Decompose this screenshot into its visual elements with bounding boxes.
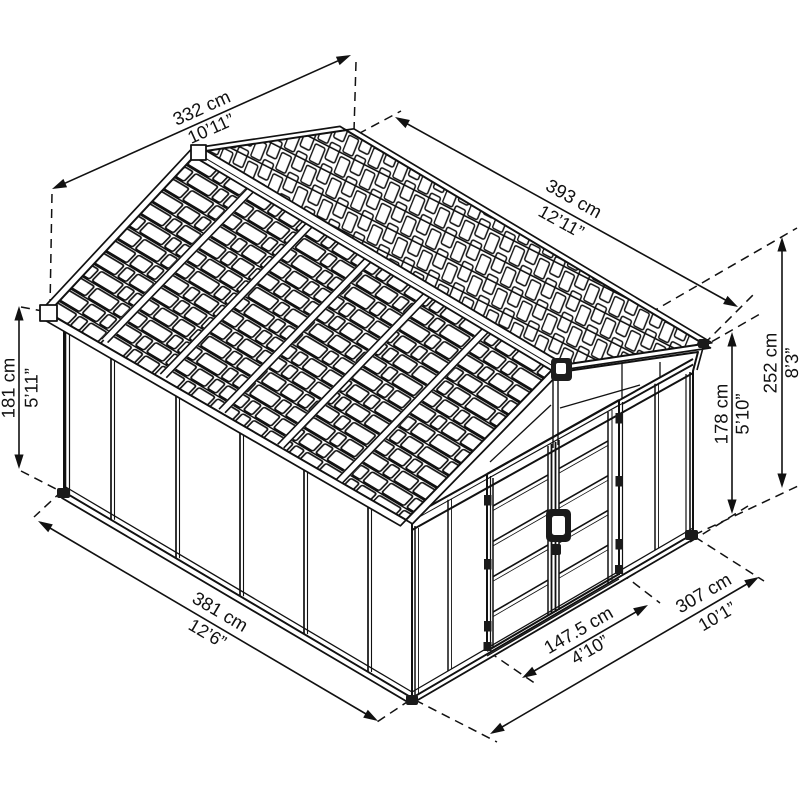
svg-text:5’11”: 5’11” [21, 368, 42, 408]
svg-text:252 cm: 252 cm [760, 333, 781, 394]
svg-text:5’10”: 5’10” [732, 393, 753, 434]
svg-text:8’3”: 8’3” [781, 348, 800, 379]
svg-text:181 cm: 181 cm [0, 358, 19, 419]
svg-text:178 cm: 178 cm [711, 384, 732, 445]
